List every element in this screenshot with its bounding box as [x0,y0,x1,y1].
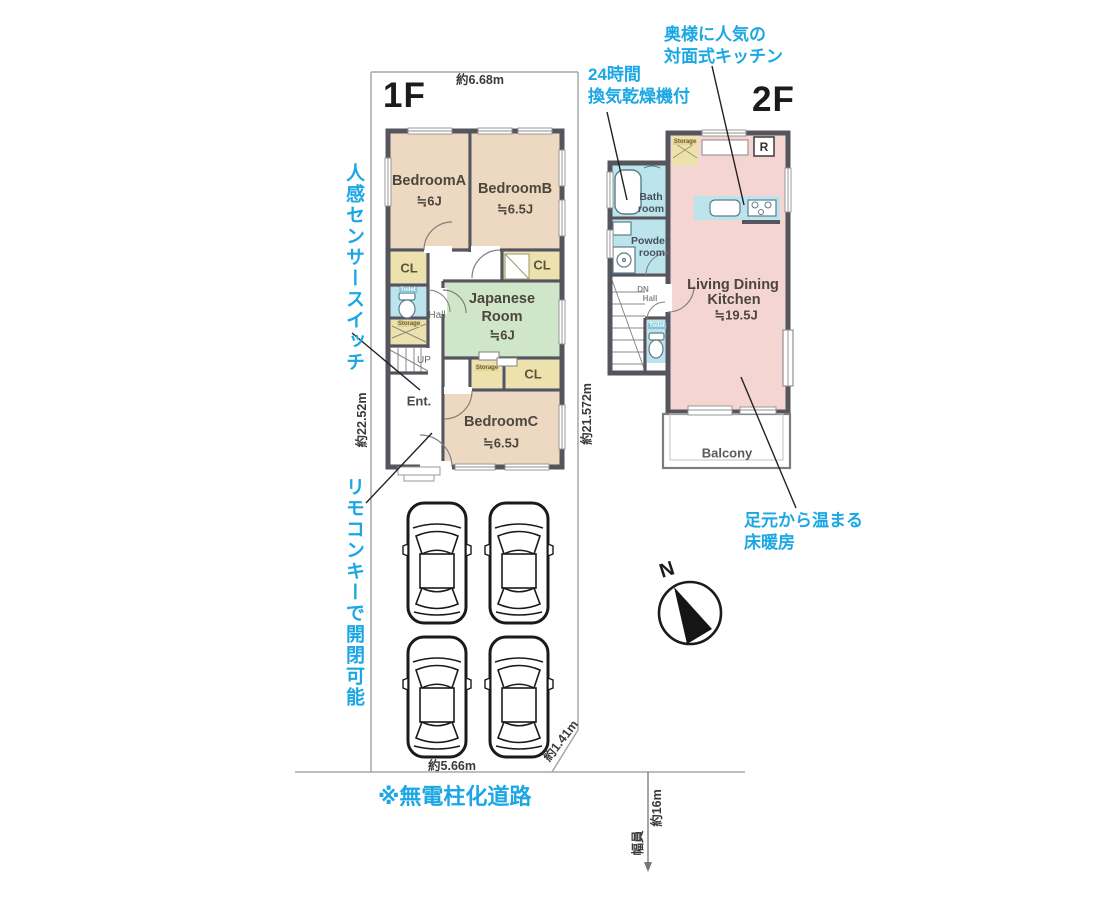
car [485,503,553,623]
label-fridge: R [760,141,769,153]
dim-bottom-width: 約5.66m [428,760,476,773]
label-closet-c: CL [524,368,541,381]
dim-right-depth: 約21.572m [581,383,594,445]
label-bedroom-b-size: ≒6.5J [497,203,533,216]
label-storage-jp: Storage [475,365,499,371]
label-bedroom-a: BedroomA [392,174,466,189]
label-closet-b: CL [533,259,550,272]
label-bedroom-c-size: ≒6.5J [483,437,519,450]
floor2-title: 2F [752,82,795,117]
dim-road-width-label: 幅員 [632,830,645,855]
label-bath-2: room [638,204,664,215]
label-powder-1: Powder [631,236,669,247]
label-entrance: Ent. [407,395,432,408]
annotation-floor-heating-2: 床暖房 [744,534,795,551]
label-powder-2: room [639,248,665,259]
label-bedroom-b: BedroomB [478,182,552,197]
label-up: UP [417,356,431,366]
annotation-ventilation-2: 換気乾燥機付 [588,88,690,105]
dim-left-depth: 約22.52m [356,393,369,448]
annotation-floor-heating-1: 足元から温まる [744,512,863,529]
label-bedroom-c: BedroomC [464,415,538,430]
floor-plan-canvas: 1F 2F 約6.68m 約22.52m 約21.572m 約5.66m 約1.… [0,0,1100,919]
label-toilet-1f: Toilet [399,287,417,293]
label-ldk-2: Kitchen [707,293,760,308]
ldk-cabinet [702,140,748,155]
floor-plan-drawing [0,0,1100,919]
label-balcony: Balcony [702,447,753,460]
annotation-ventilation-1: 24時間 [588,66,641,83]
label-bedroom-a-size: ≒6J [416,195,441,208]
annotation-remote-key: リモコンキーで開閉可能 [344,477,363,708]
car [485,637,553,757]
label-closet-a: CL [400,262,417,275]
floor1-title: 1F [383,78,426,113]
label-ldk-1: Living Dining [687,278,779,293]
label-bath-1: Bath [639,192,662,203]
label-hall-1f: Hall [428,311,445,321]
annotation-motion-sensor: 人感センサースイッチ [344,163,363,373]
annotation-road-note: ※無電柱化道路 [378,786,531,808]
label-japanese-room-2: Room [481,310,522,325]
dim-top-width: 約6.68m [456,74,504,87]
label-storage-2f: Storage [673,139,697,145]
toilet-1f-fixture [399,293,415,318]
annotation-kitchen-2: 対面式キッチン [664,48,783,65]
entrance-porch [398,467,440,481]
label-toilet-2f: Toilet [648,323,666,329]
label-hall-2f: Hall [643,295,658,303]
label-japanese-room-size: ≒6J [489,329,514,342]
car [403,503,471,623]
dim-road-width-value: 約16m [651,789,664,827]
car [403,637,471,757]
parking-cars [403,503,553,757]
label-japanese-room-1: Japanese [469,292,535,307]
label-dn: DN [637,286,649,294]
toilet-2f-fixture [649,333,664,358]
ldk-floor [670,135,786,410]
label-ldk-size: ≒19.5J [714,309,757,322]
annotation-kitchen-1: 奥様に人気の [664,26,766,43]
north-compass [659,582,721,644]
label-storage-hall: Storage [397,321,421,327]
